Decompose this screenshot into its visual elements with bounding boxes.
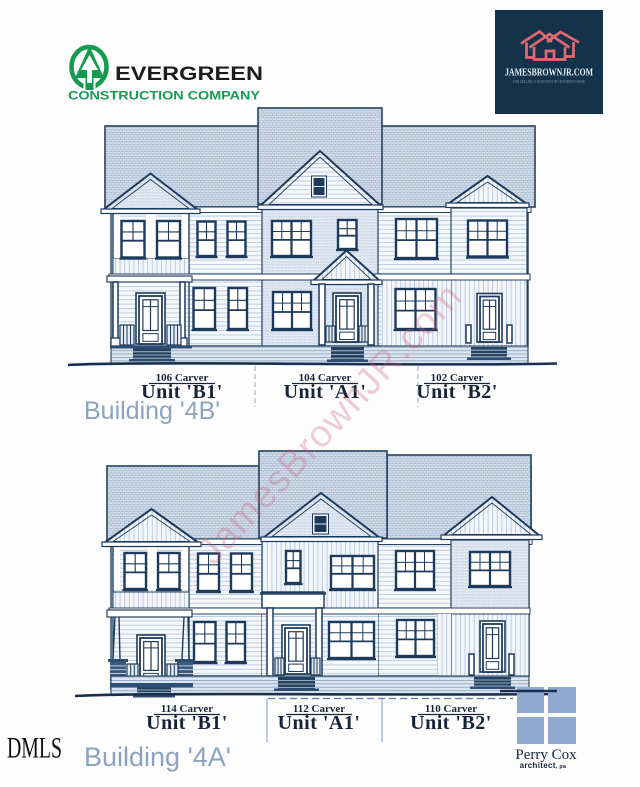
svg-text:DMLS: DMLS bbox=[7, 732, 62, 765]
svg-text:Unit 'A1': Unit 'A1' bbox=[278, 712, 361, 734]
svg-text:Unit 'B1': Unit 'B1' bbox=[146, 712, 228, 734]
svg-text:Building '4B': Building '4B' bbox=[84, 397, 220, 425]
svg-text:JAMESBROWNJR.COM: JAMESBROWNJR.COM bbox=[505, 68, 593, 79]
svg-text:EVERGREEN: EVERGREEN bbox=[115, 64, 263, 85]
svg-text:Unit 'B2': Unit 'B2' bbox=[416, 381, 498, 403]
svg-text:Unit 'B2': Unit 'B2' bbox=[410, 712, 492, 734]
svg-text:FOR SELLING YOUR NEXT INVESTME: FOR SELLING YOUR NEXT INVESTMENT HOME bbox=[513, 79, 585, 84]
svg-text:CONSTRUCTION COMPANY: CONSTRUCTION COMPANY bbox=[68, 89, 260, 103]
svg-text:Building '4A': Building '4A' bbox=[84, 742, 231, 772]
